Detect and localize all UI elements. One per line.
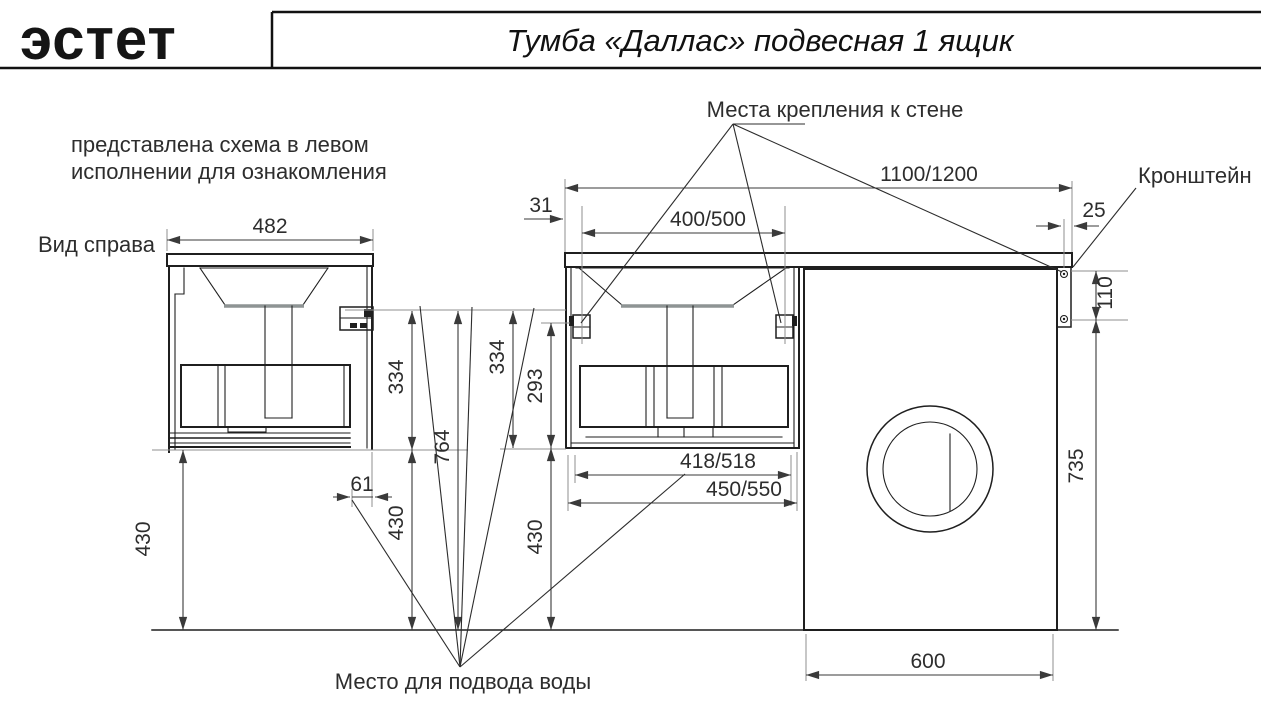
front-view bbox=[565, 253, 1072, 448]
side-view: Вид справа bbox=[38, 232, 373, 452]
front-countertop bbox=[565, 253, 1072, 267]
technical-drawing-page: эстет Тумба «Даллас» подвесная 1 ящик пр… bbox=[0, 0, 1261, 702]
note: представлена схема в левом исполнении дл… bbox=[71, 132, 387, 184]
bracket-label: Кронштейн bbox=[1138, 163, 1252, 188]
drawing-canvas: эстет Тумба «Даллас» подвесная 1 ящик пр… bbox=[0, 0, 1261, 702]
dim-31: 31 bbox=[529, 194, 552, 217]
dim-600: 600 bbox=[910, 650, 945, 673]
water-supply-label: Место для подвода воды bbox=[335, 669, 591, 694]
note-line-1: представлена схема в левом bbox=[71, 132, 369, 157]
dimensions: 482 1100/1200 31 400/500 25 110 735 600 bbox=[132, 163, 1128, 681]
callouts: Места крепления к стене Кронштейн Место … bbox=[335, 97, 1252, 694]
dim-25: 25 bbox=[1082, 199, 1105, 222]
wall-mount-label: Места крепления к стене bbox=[707, 97, 964, 122]
dim-430-mid: 430 bbox=[385, 505, 408, 540]
dim-1100-1200: 1100/1200 bbox=[880, 163, 978, 186]
front-drain-pipe bbox=[667, 306, 693, 418]
dim-450-550: 450/550 bbox=[706, 478, 782, 501]
side-view-label: Вид справа bbox=[38, 232, 156, 257]
dim-400-500: 400/500 bbox=[670, 208, 746, 231]
dim-418-518: 418/518 bbox=[680, 450, 756, 473]
brand-logo: эстет bbox=[20, 7, 177, 72]
dim-334-side: 334 bbox=[385, 359, 408, 394]
dim-61: 61 bbox=[350, 473, 373, 496]
side-countertop bbox=[167, 254, 373, 266]
dim-334-front: 334 bbox=[486, 339, 509, 374]
side-drain-pipe bbox=[265, 306, 292, 418]
wall-bracket-right bbox=[1057, 267, 1071, 327]
dim-293: 293 bbox=[524, 368, 547, 403]
header: эстет Тумба «Даллас» подвесная 1 ящик bbox=[0, 7, 1261, 72]
dim-482: 482 bbox=[252, 215, 287, 238]
dim-735: 735 bbox=[1065, 448, 1088, 483]
dim-110: 110 bbox=[1094, 276, 1117, 309]
front-drawer bbox=[580, 366, 788, 437]
washing-machine bbox=[804, 269, 1057, 630]
front-left-bracket bbox=[569, 315, 590, 338]
note-line-2: исполнении для ознакомления bbox=[71, 159, 387, 184]
washer-door-outer bbox=[867, 406, 993, 532]
washer-door-inner bbox=[883, 422, 977, 516]
dim-430-left: 430 bbox=[132, 521, 155, 556]
dim-430-center: 430 bbox=[524, 519, 547, 554]
page-title: Тумба «Даллас» подвесная 1 ящик bbox=[507, 23, 1015, 58]
